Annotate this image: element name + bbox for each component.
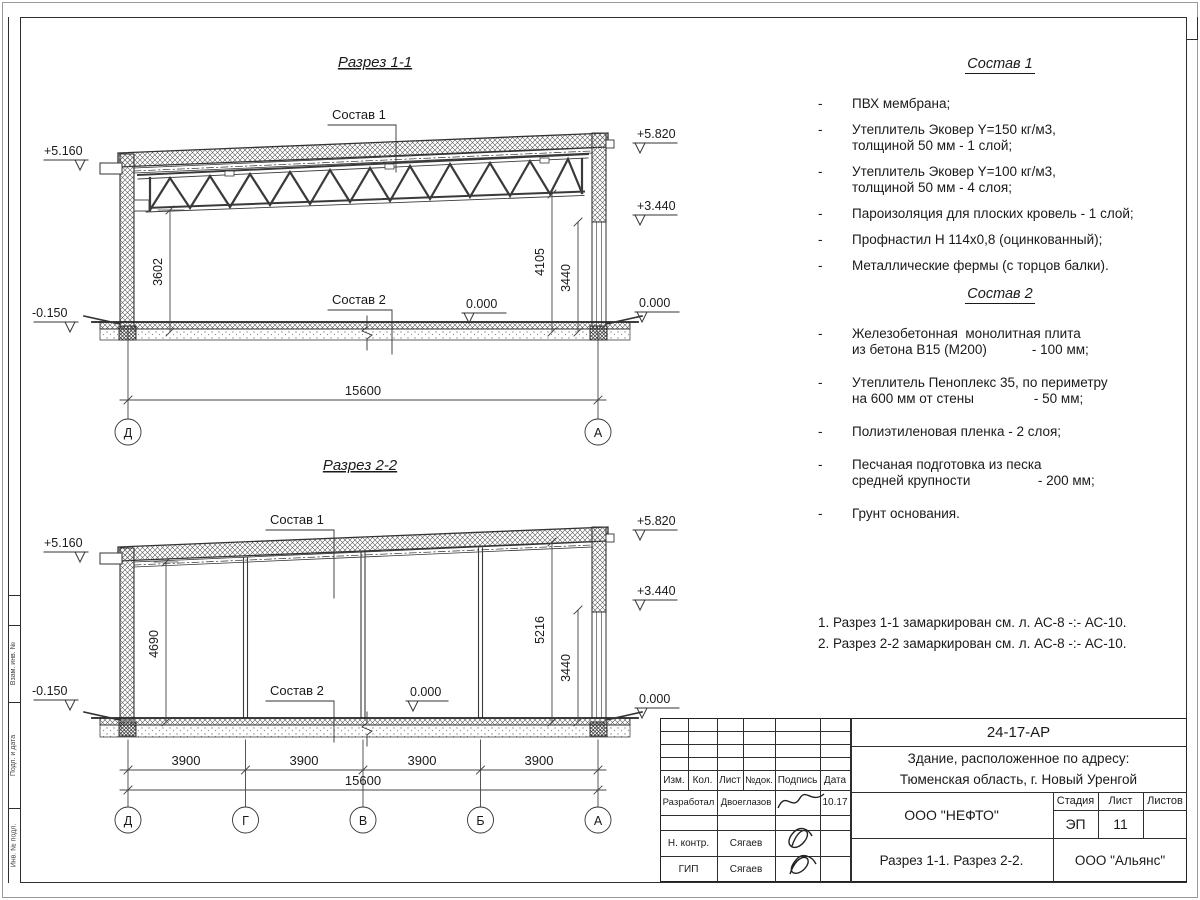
sheets-label: Листов — [1143, 792, 1187, 810]
svg-text:-0.150: -0.150 — [32, 684, 67, 698]
bullet-dash: - — [812, 375, 852, 407]
left-wall — [120, 154, 134, 326]
item-text: Пароизоляция для плоских кровель - 1 сло… — [852, 206, 1134, 222]
signature-gip — [790, 856, 816, 874]
name-gip: Сягаев — [717, 856, 775, 882]
svg-text:15600: 15600 — [345, 773, 381, 788]
svg-text:3602: 3602 — [151, 258, 165, 286]
svg-text:Состав 1: Состав 1 — [332, 107, 386, 122]
bullet-dash: - — [812, 326, 852, 358]
svg-text:0.000: 0.000 — [410, 685, 441, 699]
drawing-sheet: Взам. инв. № Подп. и дата Инв. № подл. Р… — [0, 0, 1200, 900]
svg-text:3440: 3440 — [559, 264, 573, 292]
item-text: Утеплитель Эковер Y=100 кг/м3, толщиной … — [852, 164, 1056, 196]
svg-text:0.000: 0.000 — [466, 297, 497, 311]
svg-text:+3.440: +3.440 — [637, 584, 676, 598]
list-item: -Песчаная подготовка из песка средней кр… — [812, 457, 1188, 489]
bullet-dash: - — [812, 506, 852, 522]
company: ООО "НЕФТО" — [850, 792, 1053, 838]
axis-a: А — [594, 426, 603, 440]
col-kol: Кол. — [688, 770, 717, 790]
item-text: Металлические фермы (с торцов балки). — [852, 258, 1109, 274]
svg-text:3900: 3900 — [172, 753, 201, 768]
sheet-label: Лист — [1098, 792, 1143, 810]
list-item: -Профнастил Н 114х0,8 (оцинкованный); — [812, 232, 1188, 248]
note-line-1: 1. Разрез 1-1 замаркирован см. л. АС-8 -… — [818, 612, 1127, 633]
svg-text:0.000: 0.000 — [639, 692, 670, 706]
svg-text:+5.820: +5.820 — [637, 127, 676, 141]
bullet-dash: - — [812, 206, 852, 222]
stage-label: Стадия — [1053, 792, 1098, 810]
section-2-2-title: Разрез 2-2 — [323, 457, 398, 474]
section-1-1: Разрез 1-1 — [32, 54, 679, 445]
parapet-cap — [606, 140, 614, 148]
svg-text:Состав 2: Состав 2 — [270, 683, 324, 698]
axis-v: В — [359, 814, 367, 828]
bullet-dash: - — [812, 424, 852, 440]
svg-text:-0.150: -0.150 — [32, 306, 67, 320]
bullet-dash: - — [812, 232, 852, 248]
vertical-dimensions: 3602 4105 3440 — [151, 190, 582, 336]
item-text: ПВХ мембрана; — [852, 96, 950, 112]
object-line-1: Здание, расположенное по адресу: — [850, 748, 1187, 769]
svg-text:+5.820: +5.820 — [637, 514, 676, 528]
item-text: Утеплитель Эковер Y=150 кг/м3, толщиной … — [852, 122, 1056, 154]
list-item: -Утеплитель Эковер Y=100 кг/м3, толщиной… — [812, 164, 1188, 196]
list-item: -Утеплитель Пеноплекс 35, по периметру н… — [812, 375, 1188, 407]
svg-text:4690: 4690 — [147, 630, 161, 658]
col-list: Лист — [717, 770, 743, 790]
axis-g: Г — [242, 814, 249, 828]
bottom-dimensions: 3900 3900 3900 3900 15600 Д Г В Б А — [115, 740, 611, 833]
left-wall — [120, 548, 134, 720]
note-line-2: 2. Разрез 2-2 замаркирован см. л. АС-8 -… — [818, 633, 1127, 654]
gutter — [100, 163, 122, 174]
item-text: Железобетонная монолитная плита из бетон… — [852, 326, 1089, 358]
name-ncontrol: Сягаев — [717, 830, 775, 856]
stage-value: ЭП — [1053, 810, 1098, 838]
item-text: Профнастил Н 114х0,8 (оцинкованный); — [852, 232, 1102, 248]
notes: 1. Разрез 1-1 замаркирован см. л. АС-8 -… — [818, 612, 1127, 654]
svg-text:3440: 3440 — [559, 654, 573, 682]
col-izm: Изм. — [660, 770, 688, 790]
signatures — [770, 782, 830, 882]
sostav2-title: Состав 2 — [812, 286, 1188, 302]
list-item: -Грунт основания. — [812, 506, 1188, 522]
svg-text:+5.160: +5.160 — [44, 536, 83, 550]
role-gip: ГИП — [660, 856, 717, 882]
name-developed: Двоеглазов — [717, 790, 775, 815]
object-name: Здание, расположенное по адресу: Тюменск… — [850, 748, 1187, 792]
bullet-dash: - — [812, 164, 852, 196]
sostav2-list: Состав 2 -Железобетонная монолитная плит… — [812, 286, 1188, 539]
signature-ncontrol — [789, 829, 812, 848]
item-text: Полиэтиленовая пленка - 2 слоя; — [852, 424, 1061, 440]
svg-text:5216: 5216 — [533, 616, 547, 644]
list-item: -Металлические фермы (с торцов балки). — [812, 258, 1188, 274]
sheet-number: 11 — [1098, 810, 1143, 838]
section-2-2: Разрез 2-2 — [32, 457, 679, 833]
object-line-2: Тюменская область, г. Новый Уренгой — [850, 769, 1187, 790]
list-item: -Железобетонная монолитная плита из бето… — [812, 326, 1188, 358]
svg-text:3900: 3900 — [408, 753, 437, 768]
bullet-dash: - — [812, 96, 852, 112]
svg-text:Состав 1: Состав 1 — [270, 512, 324, 527]
sostav1-list: Состав 1 -ПВХ мембрана; -Утеплитель Эков… — [812, 56, 1188, 284]
bullet-dash: - — [812, 122, 852, 154]
svg-text:4105: 4105 — [533, 248, 547, 276]
svg-text:0.000: 0.000 — [639, 296, 670, 310]
axis-a: А — [594, 814, 603, 828]
floor-slab — [84, 316, 642, 350]
svg-text:Состав 2: Состав 2 — [332, 292, 386, 307]
svg-text:15600: 15600 — [345, 383, 381, 398]
item-text: Песчаная подготовка из песка средней кру… — [852, 457, 1095, 489]
axis-d: Д — [124, 814, 133, 828]
section-1-1-title: Разрез 1-1 — [338, 54, 412, 71]
contractor: ООО "Альянс" — [1053, 838, 1187, 882]
svg-text:+3.440: +3.440 — [637, 199, 676, 213]
signature-developed — [778, 794, 824, 808]
list-item: -Утеплитель Эковер Y=150 кг/м3, толщиной… — [812, 122, 1188, 154]
role-ncontrol: Н. контр. — [660, 830, 717, 856]
axis-b: Б — [476, 814, 484, 828]
list-item: -Пароизоляция для плоских кровель - 1 сл… — [812, 206, 1188, 222]
bullet-dash: - — [812, 258, 852, 274]
svg-text:+5.160: +5.160 — [44, 144, 83, 158]
doc-number: 24-17-АР — [850, 718, 1187, 746]
right-wall — [592, 527, 606, 612]
right-wall — [592, 133, 606, 222]
item-text: Грунт основания. — [852, 506, 960, 522]
item-text: Утеплитель Пеноплекс 35, по периметру на… — [852, 375, 1108, 407]
sostav1-title: Состав 1 — [812, 56, 1188, 72]
sheet-name: Разрез 1-1. Разрез 2-2. — [850, 838, 1053, 882]
bottom-dimension: 15600 Д А — [115, 332, 611, 445]
axis-d: Д — [124, 426, 133, 440]
svg-text:3900: 3900 — [525, 753, 554, 768]
list-item: -Полиэтиленовая пленка - 2 слоя; — [812, 424, 1188, 440]
gutter — [100, 553, 122, 564]
svg-text:3900: 3900 — [290, 753, 319, 768]
list-item: -ПВХ мембрана; — [812, 96, 1188, 112]
parapet-cap — [606, 534, 614, 542]
role-developed: Разработал — [660, 790, 717, 815]
sheets-total — [1143, 810, 1187, 838]
bullet-dash: - — [812, 457, 852, 489]
